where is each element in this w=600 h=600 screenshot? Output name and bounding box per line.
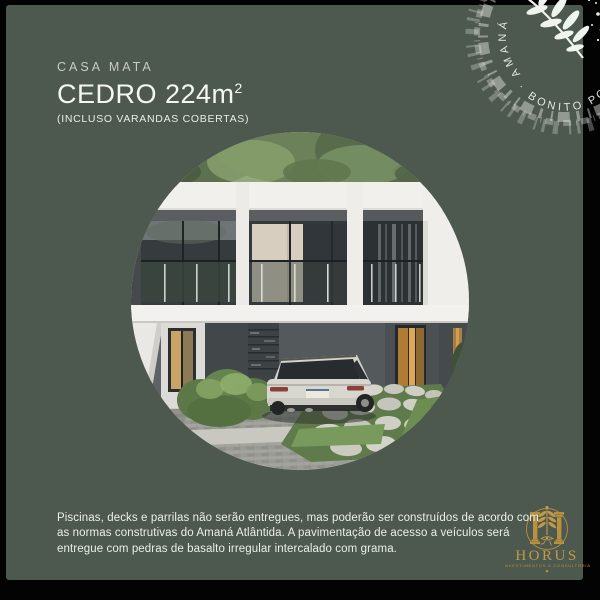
logo-diamond	[545, 570, 548, 573]
house-upper-floor	[131, 182, 469, 305]
page-title: CEDRO 224m2	[57, 79, 249, 110]
house-render	[131, 132, 469, 470]
olive-branch-icon	[525, 0, 591, 58]
stamp-slogan-text: BONITO POR	[526, 77, 600, 114]
property-photo	[131, 132, 469, 470]
header: CASA MATA CEDRO 224m2 (INCLUSO VARANDAS …	[57, 60, 249, 125]
stamp-separator: ·	[515, 81, 527, 91]
poster-canvas: CASA MATA CEDRO 224m2 (INCLUSO VARANDAS …	[0, 0, 600, 600]
stamp-brand-text: AMANÁ	[496, 17, 523, 80]
brand-stamp: AMANÁ · BONITO POR	[465, 0, 600, 145]
disclaimer-text: Piscinas, decks e parrilas não serão ent…	[57, 511, 551, 557]
subtitle: (INCLUSO VARANDAS COBERTAS)	[57, 113, 249, 125]
svg-text:·: ·	[515, 81, 527, 91]
logo-tagline: INVESTIMENTOS & CONSULTORIA	[505, 563, 591, 568]
house-slab	[131, 305, 469, 323]
title-superscript: 2	[235, 80, 243, 96]
svg-text:BONITO POR: BONITO POR	[526, 77, 600, 114]
svg-text:AMANÁ: AMANÁ	[496, 17, 523, 80]
title-text: CEDRO 224m	[57, 79, 235, 109]
collection-label: CASA MATA	[57, 60, 249, 74]
